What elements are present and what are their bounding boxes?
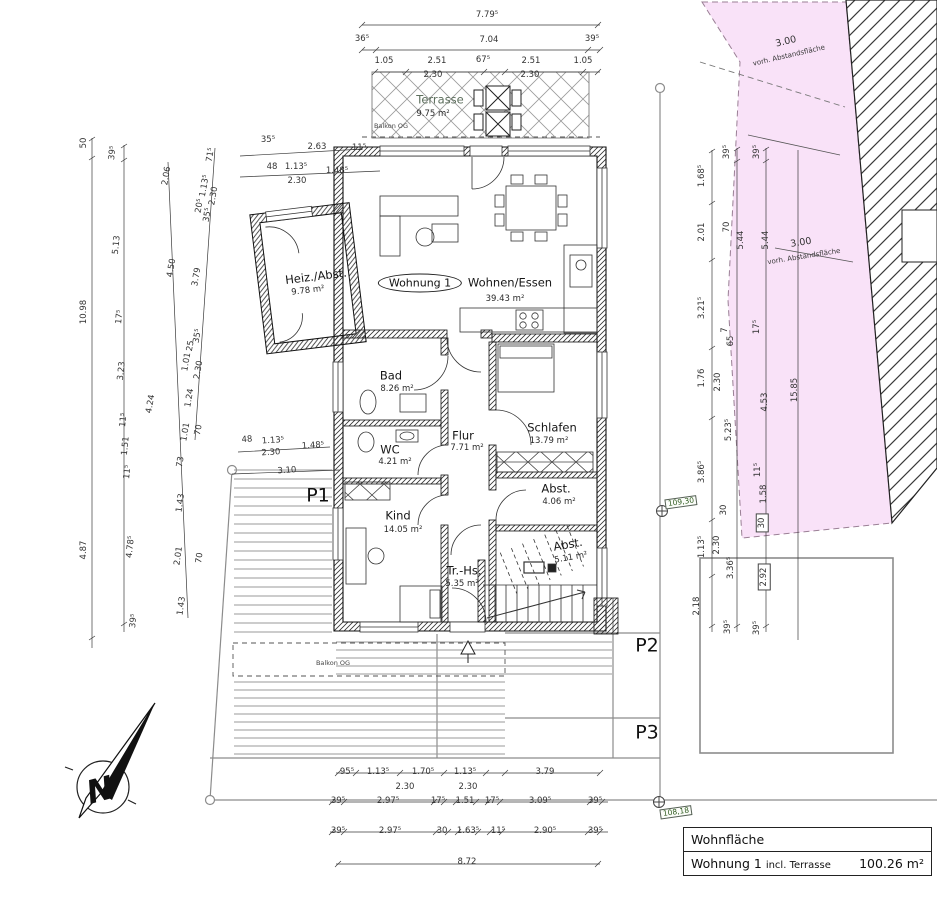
dimension-label: 39⁵ <box>753 621 762 635</box>
room-area-label: 4.21 m² <box>378 458 411 467</box>
room-area-label: 9.78 m² <box>291 285 325 297</box>
dimension-label: 39⁵ <box>588 797 602 806</box>
room-area-label: 9.75 m² <box>416 110 449 119</box>
dimension-label: 2.63 <box>308 143 327 152</box>
dimension-label: 11⁵ <box>491 827 505 836</box>
area-table-row-label: Wohnung 1 incl. Terrasse <box>691 856 831 871</box>
floor-plan-page: N 7.79⁵36⁵7.0439⁵1.052.5167⁵2.511.052.30… <box>0 0 937 901</box>
area-table-header: Wohnfläche <box>684 828 931 852</box>
dimension-label: 36⁵ <box>355 35 369 44</box>
room-name-label: Kind <box>385 510 410 522</box>
dimension-label: 1.13⁵ <box>262 436 285 446</box>
dimension-label: 1.05 <box>375 57 394 66</box>
area-table: Wohnfläche Wohnung 1 incl. Terrasse 100.… <box>683 827 932 876</box>
dimension-label: 4.78⁵ <box>126 535 137 558</box>
room-name-label: Flur <box>452 430 474 442</box>
dimension-label: 1.68⁵ <box>698 165 707 187</box>
survey-marker-label: 108,18 <box>659 805 692 819</box>
room-name-label: Tr.-Hs. <box>446 565 481 577</box>
room-name-label: WC <box>380 444 399 456</box>
dimension-label: 39⁵ <box>331 797 345 806</box>
dimension-label: 1.76 <box>698 369 707 388</box>
dimension-label: 3.21⁵ <box>698 297 707 319</box>
room-area-label: 7.71 m² <box>450 444 483 453</box>
dimension-label: 39⁵ <box>724 620 733 634</box>
dimension-label: 1.13⁵ <box>454 768 476 777</box>
dimension-label: 35⁵ <box>203 207 214 222</box>
dimension-label: 2.51 <box>522 57 541 66</box>
dimension-label: 30 <box>720 505 729 516</box>
room-area-label: 8.26 m² <box>380 385 413 394</box>
dimension-label: 2.01 <box>698 223 707 242</box>
abstand-dimension-label: 3.00 <box>790 237 812 250</box>
abstand-text-label: vorh. Abstandsfläche <box>767 248 841 266</box>
dimension-label: 1.05 <box>574 57 593 66</box>
room-area-label: 39.43 m² <box>486 295 525 304</box>
dimension-label: 2.97⁵ <box>377 797 399 806</box>
dimension-label: 4.53 <box>761 393 770 412</box>
dimension-label: 35⁵ <box>261 136 275 145</box>
dimension-label: 67⁵ <box>476 56 490 65</box>
dimension-label: 70 <box>723 222 732 233</box>
dimension-label: 5.44 <box>737 231 746 250</box>
dimension-label: 1.51 <box>121 436 131 456</box>
dimension-label: 70 <box>195 552 205 564</box>
dimension-label: 17⁵ <box>431 797 445 806</box>
balkon-og-label: Balkon OG <box>374 123 408 130</box>
area-table-unit-suffix: incl. Terrasse <box>766 860 831 871</box>
dimension-label: 5.44 <box>762 231 771 250</box>
dimension-label: 10.98 <box>80 300 89 324</box>
area-table-row-value: 100.26 m² <box>859 856 924 871</box>
dimension-label: 50 <box>80 138 89 149</box>
dimension-label: 4.87 <box>80 541 89 560</box>
room-area-label: 14.05 m² <box>384 526 423 535</box>
dimension-label: 1.48⁵ <box>326 167 348 176</box>
dimension-label: 1.24 <box>184 388 196 408</box>
dimension-label: 3.10 <box>277 466 296 476</box>
dimension-label: 1.01 <box>180 422 192 442</box>
dimension-label: 39⁵ <box>588 827 602 836</box>
dimension-label: 25 <box>186 340 196 352</box>
dimension-label: 1.63⁵ <box>457 827 479 836</box>
dimension-label: 2.30 <box>713 536 722 555</box>
dimension-label: 2.18 <box>693 597 702 616</box>
dimension-label: 3.36⁵ <box>727 557 736 579</box>
dimension-label: 71⁵ <box>206 147 217 162</box>
dimension-label: 3.79 <box>536 768 555 777</box>
dimension-label: 11⁵ <box>123 464 133 479</box>
dimension-label: 1.70⁵ <box>412 768 434 777</box>
dimension-label: 3.23 <box>117 361 127 381</box>
dimension-label: 3.79 <box>191 267 203 287</box>
survey-marker-label: 109,30 <box>664 495 697 509</box>
abstand-dimension-label: 3.00 <box>775 35 798 49</box>
area-table-row: Wohnung 1 incl. Terrasse 100.26 m² <box>684 852 931 875</box>
dimension-label: 65 <box>727 336 736 347</box>
dimension-label: 17⁵ <box>485 797 499 806</box>
dimension-label: 1.58 <box>760 485 769 504</box>
room-name-label: Abst. <box>541 483 570 495</box>
dimension-label: 39⁵ <box>753 145 762 159</box>
dimension-label: 39⁵ <box>585 35 599 44</box>
dimension-label: 39⁵ <box>331 827 345 836</box>
dimension-label: 39⁵ <box>129 613 139 628</box>
dimension-label: 5.23⁵ <box>725 419 734 441</box>
dimension-label: 2.30 <box>396 783 415 792</box>
dimension-label: 3.09⁵ <box>529 797 551 806</box>
dimension-label: 8.72 <box>458 858 477 867</box>
dimension-label: 1.13⁵ <box>698 536 707 558</box>
dimension-label: 1.51 <box>456 797 475 806</box>
room-area-label: 5.35 m² <box>445 580 478 589</box>
dimension-label: 2.30 <box>208 186 220 206</box>
dimension-label: 30 <box>437 827 448 836</box>
dimension-label: 3.86⁵ <box>698 461 707 483</box>
room-name-label: Bad <box>380 370 402 382</box>
abstand-text-label: vorh. Abstandsfläche <box>752 44 825 67</box>
room-name-label: Wohnen/Essen <box>468 277 552 289</box>
dimension-label: 2.30 <box>193 360 205 380</box>
balkon-og-label: Balkon OG <box>316 660 350 667</box>
room-name-label: Terrasse <box>416 94 464 106</box>
dimension-label: 11⁵ <box>754 463 763 477</box>
dimension-label: 4.50 <box>166 258 178 278</box>
dimension-label: 2.06 <box>161 166 173 186</box>
dimension-label: 17⁵ <box>753 320 762 334</box>
room-name-label: Schlafen <box>527 422 577 434</box>
dimension-label: 39⁵ <box>723 145 732 159</box>
unit-tag: Wohnung 1 <box>378 274 462 293</box>
dimension-label: 7 <box>721 327 730 332</box>
dimension-label: 70 <box>194 424 204 436</box>
label-layer: 7.79⁵36⁵7.0439⁵1.052.5167⁵2.511.052.302.… <box>0 0 937 901</box>
dimension-label: 1.01 <box>181 352 193 372</box>
dimension-label: 2.30 <box>424 71 443 80</box>
parking-label: P1 <box>306 487 330 506</box>
dimension-label: 11⁵ <box>119 412 129 427</box>
dimension-label: 48 <box>241 435 252 444</box>
dimension-label: 1.13⁵ <box>367 768 389 777</box>
dimension-label: 1.43 <box>176 596 187 616</box>
dimension-label: 7.79⁵ <box>476 11 498 20</box>
dimension-label: 4.24 <box>145 394 157 414</box>
dimension-label: 2.97⁵ <box>379 827 401 836</box>
area-table-unit-name: Wohnung 1 <box>691 856 762 871</box>
dimension-label: 2.90⁵ <box>534 827 556 836</box>
room-area-label: 5.11 m² <box>554 551 588 565</box>
room-area-label: 4.06 m² <box>542 498 575 507</box>
dimension-label: 1.13⁵ <box>285 163 307 172</box>
dimension-label: 1.43 <box>175 493 186 513</box>
dimension-label: 17⁵ <box>115 309 125 324</box>
dimension-label: 2.30 <box>459 783 478 792</box>
dimension-label: 48 <box>267 163 278 172</box>
dimension-label: 30 <box>756 514 769 533</box>
dimension-label: 1.48⁵ <box>302 441 325 451</box>
dimension-label: 11⁵ <box>352 144 366 153</box>
dimension-label: 2.30 <box>261 448 280 458</box>
dimension-label: 39⁵ <box>108 145 118 160</box>
dimension-label: 2.30 <box>288 177 307 186</box>
dimension-label: 5.13 <box>112 235 122 255</box>
dimension-label: 2.51 <box>428 57 447 66</box>
parking-label: P3 <box>635 724 659 743</box>
dimension-label: 2.30 <box>521 71 540 80</box>
dimension-label: 2.30 <box>714 373 723 392</box>
dimension-label: 7.04 <box>480 36 499 45</box>
dimension-label: 2.01 <box>173 546 184 566</box>
dimension-label: 15.85 <box>791 378 800 402</box>
dimension-label: 73 <box>176 456 186 468</box>
parking-label: P2 <box>635 637 659 656</box>
room-area-label: 13.79 m² <box>530 437 569 446</box>
dimension-label: 95⁵ <box>340 768 354 777</box>
dimension-label: 2.92 <box>758 564 771 591</box>
